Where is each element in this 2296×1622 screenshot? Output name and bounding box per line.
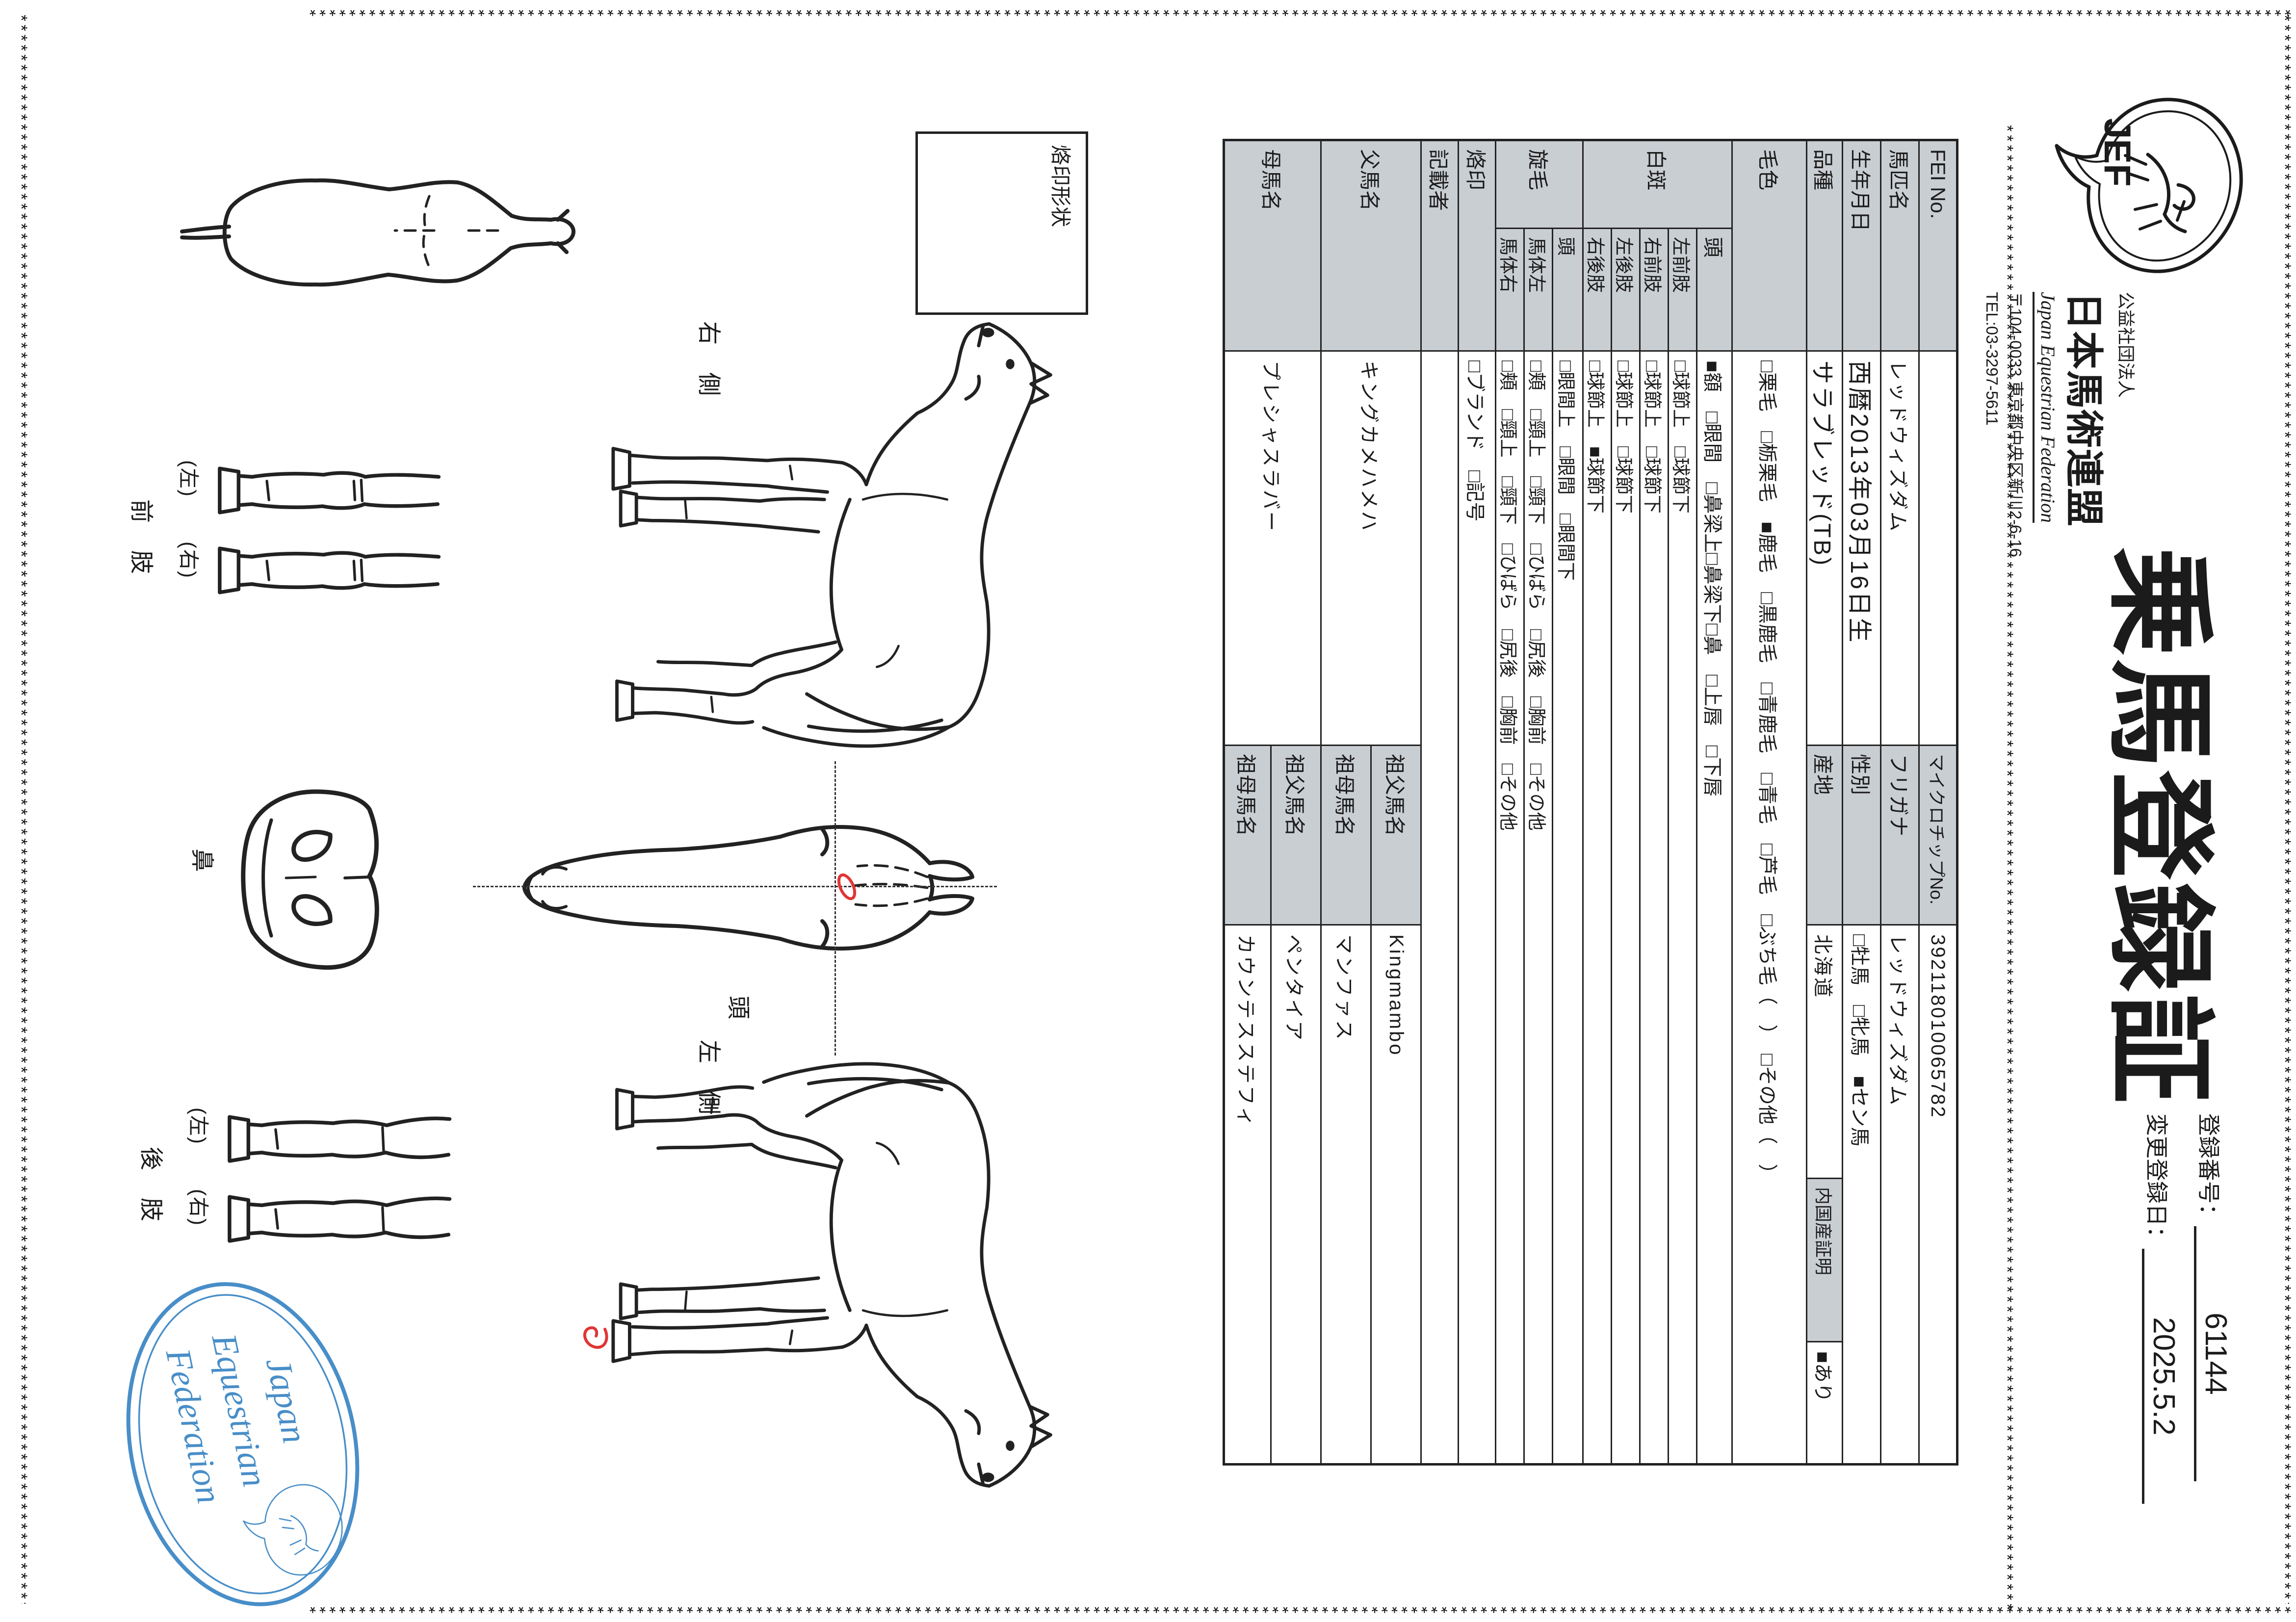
head-front-diagram: [496, 790, 976, 986]
brand-value: □ブランド □記号: [1459, 351, 1496, 1465]
whorl-part-label: 馬体左: [1524, 229, 1553, 351]
front-legs-label: 前肢: [127, 499, 161, 601]
page-title: 乗馬登録証: [2105, 547, 2214, 1106]
marking-value: □球節上 □球節下: [1640, 351, 1669, 1465]
coat-color-value: □栗毛 □栃栗毛 ■鹿毛 □黒鹿毛 □青鹿毛 □青毛 □芦毛 □ぶち毛（ ） □…: [1732, 351, 1807, 1465]
whorl-value: □頬 □頸上 □頸下 □ひばら □尻後 □胸前 □その他: [1496, 351, 1524, 1465]
registration-number-label: 登録番号：: [2194, 1113, 2226, 1226]
birth-value: 西暦2013年03月16日生: [1843, 351, 1881, 746]
dam-value: プレシャスラバー: [1224, 351, 1321, 746]
front-leg-left-diagram: [213, 459, 444, 522]
marking-value: □球節上 □球節下: [1669, 351, 1697, 1465]
kana-value: レッドウィズダム: [1881, 925, 1919, 1465]
origin-value: 北海道: [1807, 925, 1843, 1179]
asterisk-border-top: ****************************************…: [2275, 15, 2294, 1604]
white-markings-label: 白斑: [1583, 140, 1732, 229]
change-date: 2025.5.2: [2142, 1249, 2181, 1504]
org-address: 〒104-0033 東京都中央区新川2-6-16: [2005, 292, 2029, 596]
federation-stamp: Japan Equestrian Federation: [85, 1253, 398, 1622]
registration-block: 登録番号： 61144 変更登録日： 2025.5.2: [2129, 1113, 2233, 1535]
marking-part-label: 左前肢: [1669, 229, 1697, 351]
granddam-value: マンファス: [1321, 925, 1371, 1465]
table-row: 記載者: [1421, 140, 1459, 1465]
whorl-part-label: 頭: [1553, 229, 1583, 351]
registration-number: 61144: [2194, 1226, 2233, 1481]
red-leg-marking: [567, 1319, 611, 1359]
granddam-value: カウンテスステフィ: [1224, 925, 1271, 1465]
marking-part-label: 頭: [1697, 229, 1732, 351]
red-star-marking: [832, 867, 861, 906]
marking-value: □球節上 ■球節下: [1583, 351, 1612, 1465]
microchip-value: 392118010065782: [1919, 925, 1957, 1465]
sire-value: キングカメハメハ: [1321, 351, 1421, 746]
hind-leg-right-label: (右): [185, 1189, 215, 1226]
sex-label: 性別: [1843, 746, 1881, 925]
table-row: 右前肢 □球節上 □球節下: [1640, 140, 1669, 1465]
whorl-value: □頬 □頸上 □頸下 □ひばら □尻後 □胸前 □その他: [1524, 351, 1553, 1465]
marking-part-label: 右前肢: [1640, 229, 1669, 351]
table-row: 馬体右 □頬 □頸上 □頸下 □ひばら □尻後 □胸前 □その他: [1496, 140, 1524, 1465]
head-label: 頭: [724, 996, 758, 1020]
asterisk-border-right: ****************************************…: [5, 1597, 2291, 1616]
front-leg-right-diagram: [213, 539, 444, 602]
org-type: 公益社団法人: [2114, 292, 2140, 398]
table-row: 左前肢 □球節上 □球節下: [1669, 140, 1697, 1465]
certificate-page: ****************************************…: [0, 0, 2296, 1622]
grandsire-label: 祖父馬名: [1371, 746, 1421, 925]
front-leg-right-label: (右): [175, 541, 205, 579]
grandsire-label: 祖父馬名: [1271, 746, 1321, 925]
horse-name-label: 馬匹名: [1881, 140, 1919, 351]
domestic-cert-value: ■あり: [1807, 1342, 1843, 1465]
recorder-label: 記載者: [1421, 140, 1459, 351]
stamp-line1: Japan: [259, 1354, 315, 1447]
horse-left-side-diagram: [505, 1025, 1067, 1520]
scanned-certificate: ****************************************…: [0, 0, 2296, 1622]
marking-value: ■額 □眼間 □鼻梁上□鼻梁下□鼻 □上唇 □下唇: [1697, 351, 1732, 1465]
table-row: 左後肢 □球節上 □球節下: [1612, 140, 1640, 1465]
hind-leg-right-diagram: [223, 1186, 454, 1250]
fei-value: [1919, 351, 1957, 746]
asterisk-border-left: ****************************************…: [5, 0, 2291, 19]
sire-label: 父馬名: [1321, 140, 1421, 351]
granddam-label: 祖母馬名: [1321, 746, 1371, 925]
asterisk-border-bottom: ****************************************…: [11, 15, 30, 1604]
table-row: 旋毛 頭 □眼間上 □眼間 □眼間下: [1553, 140, 1583, 1465]
granddam-label: 祖母馬名: [1224, 746, 1271, 925]
domestic-cert-label: 内国産証明: [1807, 1179, 1843, 1342]
brand-label: 烙印: [1459, 140, 1496, 351]
horse-right-side-diagram: [505, 289, 1067, 785]
table-row: 毛色 □栗毛 □栃栗毛 ■鹿毛 □黒鹿毛 □青鹿毛 □青毛 □芦毛 □ぶち毛（ …: [1732, 140, 1807, 1465]
table-row: 烙印 □ブランド □記号: [1459, 140, 1496, 1465]
marking-part-label: 左後肢: [1612, 229, 1640, 351]
sex-value: □牡馬 □牝馬 ■セン馬: [1843, 925, 1881, 1465]
breed-value: サラブレッド(TB): [1807, 351, 1843, 746]
hind-legs-label: 後肢: [136, 1147, 171, 1249]
recorder-value: [1421, 351, 1459, 1465]
dorsal-view-diagram: [174, 162, 581, 299]
whorl-part-label: 馬体右: [1496, 229, 1524, 351]
head-eyeline-dashed: [835, 761, 836, 1056]
table-row: 馬体左 □頬 □頸上 □頸下 □ひばら □尻後 □胸前 □その他: [1524, 140, 1553, 1465]
muzzle-diagram: [238, 780, 390, 976]
right-side-label: 右側: [694, 321, 729, 423]
origin-label: 産地: [1807, 746, 1843, 925]
table-row: 父馬名 キングカメハメハ 祖父馬名 Kingmambo: [1371, 140, 1421, 1465]
whorls-label: 旋毛: [1496, 140, 1583, 229]
grandsire-value: ペンタイア: [1271, 925, 1321, 1465]
muzzle-label: 鼻: [187, 849, 222, 873]
kana-label: フリガナ: [1881, 746, 1919, 925]
org-tel: TEL:03-3297-5611: [1983, 292, 2001, 596]
hind-leg-left-label: (左): [185, 1107, 215, 1145]
jef-logo: JEF: [2045, 81, 2256, 287]
coat-color-label: 毛色: [1732, 140, 1807, 351]
org-name-en: Japan Equestrian Federation: [2033, 292, 2060, 523]
horse-data-table: FEI No. マイクロチップNo. 392118010065782 馬匹名 レ…: [1223, 139, 1958, 1466]
table-row: 母馬名 プレシャスラバー 祖父馬名 ペンタイア: [1271, 140, 1321, 1465]
microchip-label: マイクロチップNo.: [1919, 746, 1957, 925]
marking-value: □球節上 □球節下: [1612, 351, 1640, 1465]
table-row: 馬匹名 レッドウィズダム フリガナ レッドウィズダム: [1881, 140, 1919, 1465]
breed-label: 品種: [1807, 140, 1843, 351]
change-date-label: 変更登録日：: [2142, 1113, 2174, 1249]
head-centerline-dashed: [473, 886, 997, 887]
jef-logo-text: JEF: [2096, 118, 2138, 186]
grandsire-value: Kingmambo: [1371, 925, 1421, 1465]
left-side-label: 左側: [694, 1040, 729, 1142]
table-row: 生年月日 西暦2013年03月16日生 性別 □牡馬 □牝馬 ■セン馬: [1843, 140, 1881, 1465]
marking-part-label: 右後肢: [1583, 229, 1612, 351]
table-row: FEI No. マイクロチップNo. 392118010065782: [1919, 140, 1957, 1465]
table-row: 品種 サラブレッド(TB) 産地 北海道 内国産証明 ■あり: [1807, 140, 1843, 1465]
birth-label: 生年月日: [1843, 140, 1881, 351]
brand-shape-label: 烙印形状: [1047, 145, 1077, 227]
front-leg-left-label: (左): [175, 460, 205, 497]
table-row: 白斑 頭 ■額 □眼間 □鼻梁上□鼻梁下□鼻 □上唇 □下唇: [1697, 140, 1732, 1465]
horse-name-value: レッドウィズダム: [1881, 351, 1919, 746]
table-row: 右後肢 □球節上 ■球節下: [1583, 140, 1612, 1465]
fei-label: FEI No.: [1919, 140, 1957, 351]
whorl-value: □眼間上 □眼間 □眼間下: [1553, 351, 1583, 1465]
hind-leg-left-diagram: [223, 1106, 454, 1170]
brand-shape-box: 烙印形状: [915, 131, 1088, 315]
dam-label: 母馬名: [1224, 140, 1321, 351]
